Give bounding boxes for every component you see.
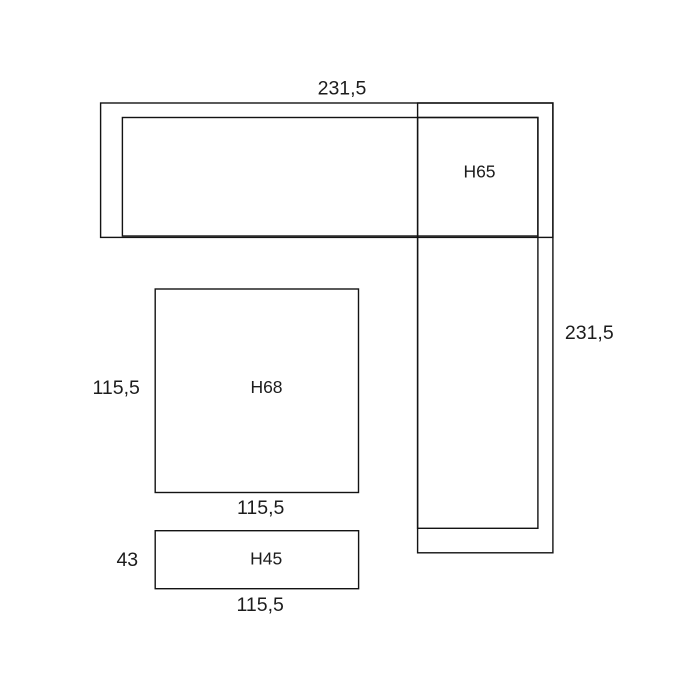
svg-text:115,5: 115,5 xyxy=(237,497,285,519)
svg-text:231,5: 231,5 xyxy=(565,322,614,344)
svg-text:115,5: 115,5 xyxy=(237,594,285,616)
svg-text:231,5: 231,5 xyxy=(318,78,367,100)
svg-text:H45: H45 xyxy=(250,549,282,569)
svg-text:H65: H65 xyxy=(463,161,495,181)
svg-text:H68: H68 xyxy=(250,377,282,397)
svg-text:115,5: 115,5 xyxy=(93,377,141,399)
svg-text:43: 43 xyxy=(116,549,138,571)
